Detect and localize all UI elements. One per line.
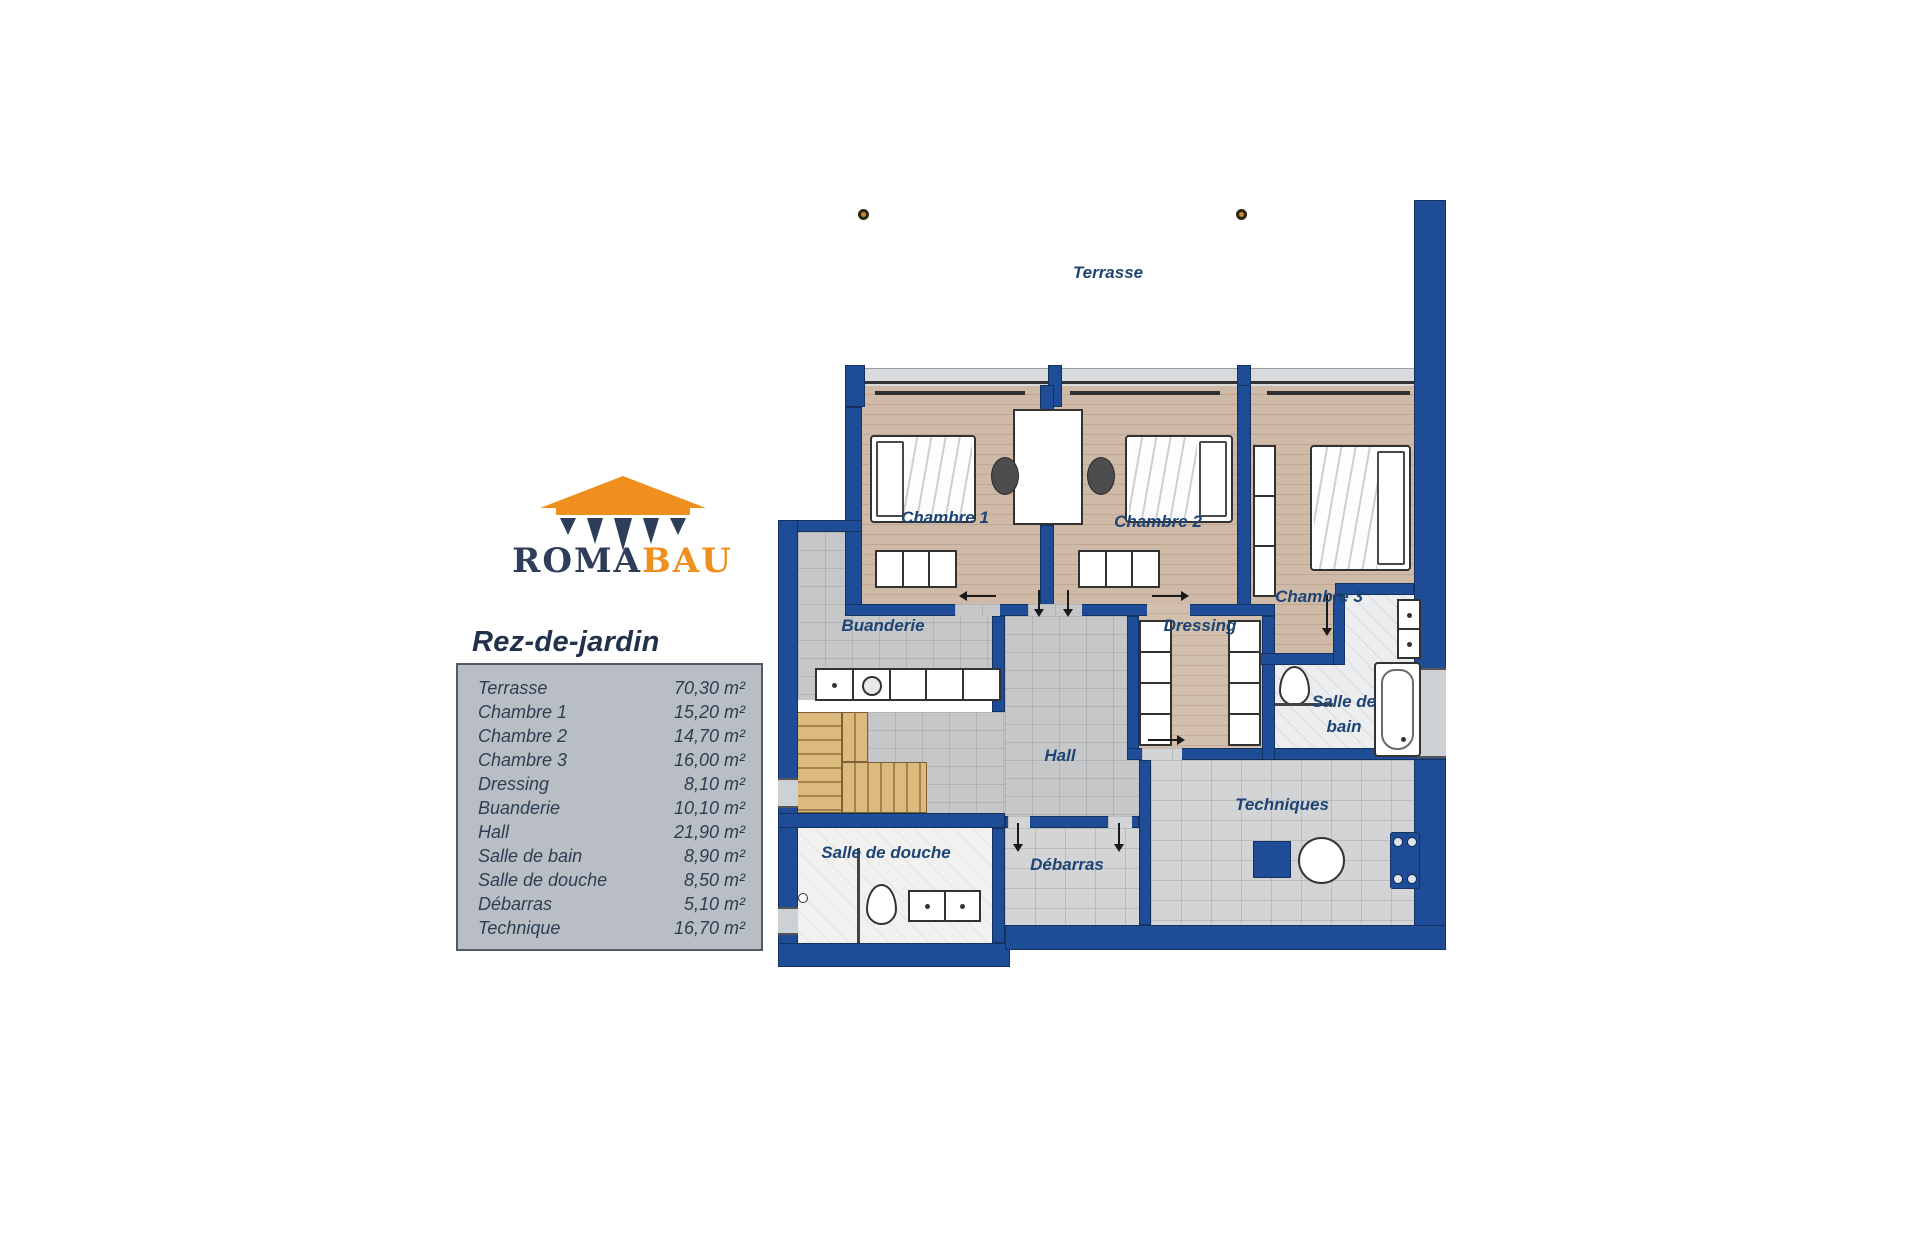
sliding-door-track	[875, 391, 1025, 395]
wardrobe	[875, 550, 957, 588]
legend-room-area: 8,10 m²	[684, 772, 745, 796]
desk	[1013, 409, 1083, 525]
wall	[1414, 200, 1446, 931]
wall	[1237, 385, 1251, 616]
sliding-glass-wall	[845, 368, 1418, 386]
bed-headboard	[876, 441, 904, 517]
floor-plan: Terrasse Chambre 1 Chambre 2 Chambre 3 B…	[770, 195, 1450, 985]
wall	[1139, 760, 1151, 925]
legend-room-area: 5,10 m²	[684, 892, 745, 916]
bed	[1310, 445, 1411, 571]
chair	[991, 457, 1019, 495]
bed	[1125, 435, 1233, 523]
legend-room-name: Salle de douche	[478, 868, 607, 892]
room-label-buanderie: Buanderie	[841, 616, 924, 636]
staircase	[797, 712, 842, 813]
legend-room-name: Technique	[478, 916, 560, 940]
legend-row: Terrasse70,30 m²	[458, 676, 761, 700]
area-legend-table: Terrasse70,30 m² Chambre 115,20 m² Chamb…	[456, 663, 763, 951]
legend-row: Hall21,90 m²	[458, 820, 761, 844]
door-swing-arrow	[1067, 590, 1069, 614]
door-swing-arrow	[1152, 595, 1186, 597]
wall	[992, 828, 1005, 943]
door-opening	[1147, 604, 1190, 616]
legend-room-name: Chambre 2	[478, 724, 567, 748]
wardrobe	[1078, 550, 1160, 588]
legend-row: Chambre 214,70 m²	[458, 724, 761, 748]
bed-duvet	[1129, 437, 1197, 521]
sink-icon	[832, 683, 837, 688]
room-label-salle-de-bain: bain	[1327, 717, 1362, 737]
dressing-wardrobe	[1228, 620, 1261, 746]
legend-room-name: Dressing	[478, 772, 549, 796]
legend-row: Buanderie10,10 m²	[458, 796, 761, 820]
wall	[845, 407, 862, 616]
washing-machine-icon	[862, 676, 882, 696]
bathtub	[1374, 662, 1421, 757]
wall	[1005, 925, 1446, 950]
legend-room-area: 16,00 m²	[674, 748, 745, 772]
room-label-hall: Hall	[1044, 746, 1075, 766]
wardrobe	[1253, 445, 1276, 597]
legend-row: Technique16,70 m²	[458, 916, 761, 940]
utility-table	[1390, 832, 1420, 889]
glass-line	[845, 381, 1418, 384]
legend-row: Chambre 316,00 m²	[458, 748, 761, 772]
logo-text-primary: ROMA	[512, 541, 642, 581]
sliding-door-track	[1070, 391, 1220, 395]
room-label-salle-de-douche: Salle de douche	[821, 843, 950, 863]
logo-text-secondary: BAU	[642, 541, 733, 581]
legend-room-area: 70,30 m²	[674, 676, 745, 700]
legend-row: Salle de bain8,90 m²	[458, 844, 761, 868]
door-opening	[1108, 816, 1132, 828]
wall	[845, 365, 865, 407]
legend-row: Chambre 115,20 m²	[458, 700, 761, 724]
logo-wordmark: ROMABAU	[500, 541, 745, 581]
room-label-chambre2: Chambre 2	[1114, 512, 1202, 532]
legend-row: Débarras5,10 m²	[458, 892, 761, 916]
door-swing-arrow	[1148, 739, 1182, 741]
room-label-terrasse: Terrasse	[1073, 263, 1143, 283]
bed-headboard	[1199, 441, 1227, 517]
legend-room-area: 8,50 m²	[684, 868, 745, 892]
washbasin-cabinet	[1397, 599, 1421, 659]
boiler-tank	[1298, 837, 1345, 884]
wall	[778, 520, 798, 967]
legend-room-area: 14,70 m²	[674, 724, 745, 748]
staircase	[842, 762, 927, 813]
legend-room-name: Chambre 1	[478, 700, 567, 724]
chair	[1087, 457, 1115, 495]
terrace-post	[858, 209, 869, 220]
legend-room-area: 15,20 m²	[674, 700, 745, 724]
legend-room-name: Hall	[478, 820, 509, 844]
legend-room-name: Buanderie	[478, 796, 560, 820]
legend-room-area: 21,90 m²	[674, 820, 745, 844]
door-opening	[955, 604, 1000, 616]
sliding-door-track	[1267, 391, 1410, 395]
floor-drain	[798, 893, 808, 903]
door-opening	[1142, 748, 1182, 760]
legend-room-name: Terrasse	[478, 676, 547, 700]
window	[778, 778, 798, 808]
wall	[778, 943, 1010, 967]
room-label-salle-de-bain: Salle de	[1312, 692, 1376, 712]
room-label-techniques: Techniques	[1235, 795, 1329, 815]
door-swing-arrow	[1038, 590, 1040, 614]
door-swing-arrow	[1118, 823, 1120, 849]
room-hall-floor	[1005, 616, 1139, 816]
bed-headboard	[1377, 451, 1405, 565]
door-swing-arrow	[962, 595, 996, 597]
room-label-dressing: Dressing	[1164, 616, 1237, 636]
bed-duvet	[1314, 447, 1377, 569]
legend-row: Salle de douche8,50 m²	[458, 868, 761, 892]
window	[778, 907, 798, 935]
bathtub-basin	[1381, 669, 1414, 750]
legend-room-name: Débarras	[478, 892, 552, 916]
dressing-wardrobe	[1139, 620, 1172, 746]
technical-unit	[1253, 841, 1291, 878]
door-swing-arrow	[1017, 823, 1019, 849]
legend-room-area: 10,10 m²	[674, 796, 745, 820]
wall	[1251, 653, 1345, 665]
wall	[1040, 525, 1054, 616]
legend-room-area: 16,70 m²	[674, 916, 745, 940]
room-label-chambre1: Chambre 1	[901, 508, 989, 528]
page: ROMABAU Rez-de-jardin Terrasse70,30 m² C…	[0, 0, 1920, 1249]
terrace-post	[1236, 209, 1247, 220]
laundry-counter	[815, 668, 1001, 701]
wall	[1262, 616, 1275, 760]
staircase	[842, 712, 868, 762]
wall	[778, 813, 1005, 828]
legend-room-name: Chambre 3	[478, 748, 567, 772]
legend-room-area: 8,90 m²	[684, 844, 745, 868]
wall	[1127, 616, 1139, 760]
room-label-chambre3: Chambre 3	[1275, 587, 1363, 607]
double-washbasin	[908, 890, 981, 922]
page-title: Rez-de-jardin	[472, 626, 660, 659]
legend-row: Dressing8,10 m²	[458, 772, 761, 796]
door-opening	[1008, 816, 1030, 828]
room-label-debarras: Débarras	[1030, 855, 1104, 875]
legend-room-name: Salle de bain	[478, 844, 582, 868]
